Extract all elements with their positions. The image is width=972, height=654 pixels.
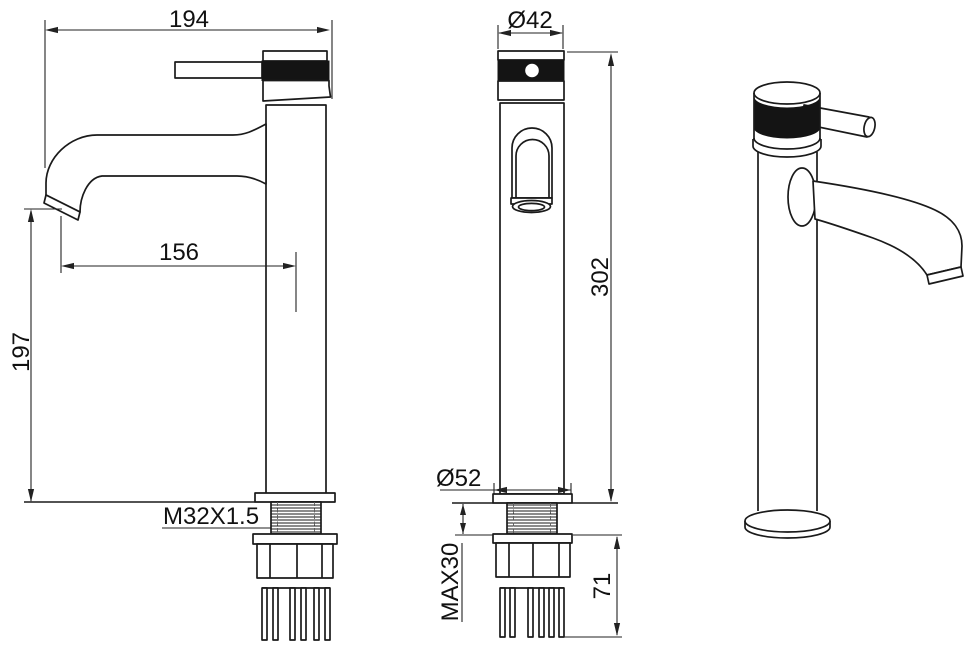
spline-rib [528,588,533,637]
dim-under-counter-length: 71 [563,535,622,637]
base-flange [255,493,335,502]
arrow-left [45,27,58,33]
dim-label-max-mounting-thickness: MAX30 [437,543,464,622]
spout-tube [813,181,962,275]
spout-arch-outer [512,128,552,198]
side-view: 194 156 197 [8,6,337,640]
mounting-nut-flange [253,534,337,544]
dim-label-spout-reach: 156 [159,239,199,266]
side-handle-lever [175,62,262,78]
dim-outlet-height: 197 [8,209,62,502]
dim-label-under-counter-length: 71 [589,573,616,600]
cap-base-flange [753,139,821,157]
spline-rib [325,588,330,640]
arrow-up [614,536,620,549]
dim-label-handle-diameter: Ø42 [507,7,552,34]
spline-rib [539,588,544,637]
arrow-down [28,489,34,502]
arrow-down [614,623,620,636]
spline-rib [559,588,564,637]
spline-rib [273,588,278,640]
arrow-right [317,27,330,33]
handle-pin-hole [525,64,539,78]
dim-handle-diameter: Ø42 [498,7,563,49]
perspective-view [745,82,963,538]
spline-sleeve [500,588,564,637]
flange-top-face [745,510,830,532]
persp-cartridge-cap [753,82,821,157]
technical-drawing-faucet: 194 156 197 [0,0,972,654]
dim-spout-reach: 156 [61,216,296,312]
persp-spout [788,168,963,284]
cap-top-face [754,82,820,104]
spline-rib [290,588,295,640]
spline-rib [262,588,267,640]
arrow-up [28,209,34,222]
dim-label-flange-diameter: Ø52 [436,465,481,492]
arrow-up [608,53,614,66]
cap-lower-rim [754,138,820,149]
spout-escutcheon [788,168,816,226]
dim-max-mounting-thickness: MAX30 [437,504,493,622]
arrow-down [608,489,614,502]
spline-rib [500,588,505,637]
dim-label-overall-height: 302 [587,257,614,297]
base-flange [493,494,572,503]
persp-base-flange [745,510,830,538]
cap-lower-band [498,81,564,100]
front-base-assembly [493,494,572,637]
spline-sleeve [262,588,330,640]
side-cartridge-cap [262,51,331,101]
spline-rib [510,588,515,637]
spline-rib [301,588,306,640]
front-cartridge-cap [498,51,564,100]
spline-rib [314,588,319,640]
drawing-svg: 194 156 197 [0,0,972,654]
spline-rib [549,588,554,637]
arrow-left [61,263,74,269]
side-base-assembly [253,493,337,640]
arrow-up [460,504,466,515]
cap-top-band [498,51,564,60]
front-spout [511,128,552,213]
tilted-cap-base [263,81,331,102]
spout-profile [46,124,266,212]
cap-top-band [263,51,327,61]
side-spout [44,124,266,220]
arrow-down [460,523,466,534]
front-view: Ø42 302 Ø52 [436,7,622,637]
mounting-nut-flange [493,534,572,543]
dim-overall-height: 302 [567,52,618,502]
thread-spec-text: M32X1.5 [163,503,259,530]
knurled-band [262,61,329,81]
dim-label-outlet-height: 197 [8,332,35,372]
dim-label-overall-width: 194 [169,6,209,33]
